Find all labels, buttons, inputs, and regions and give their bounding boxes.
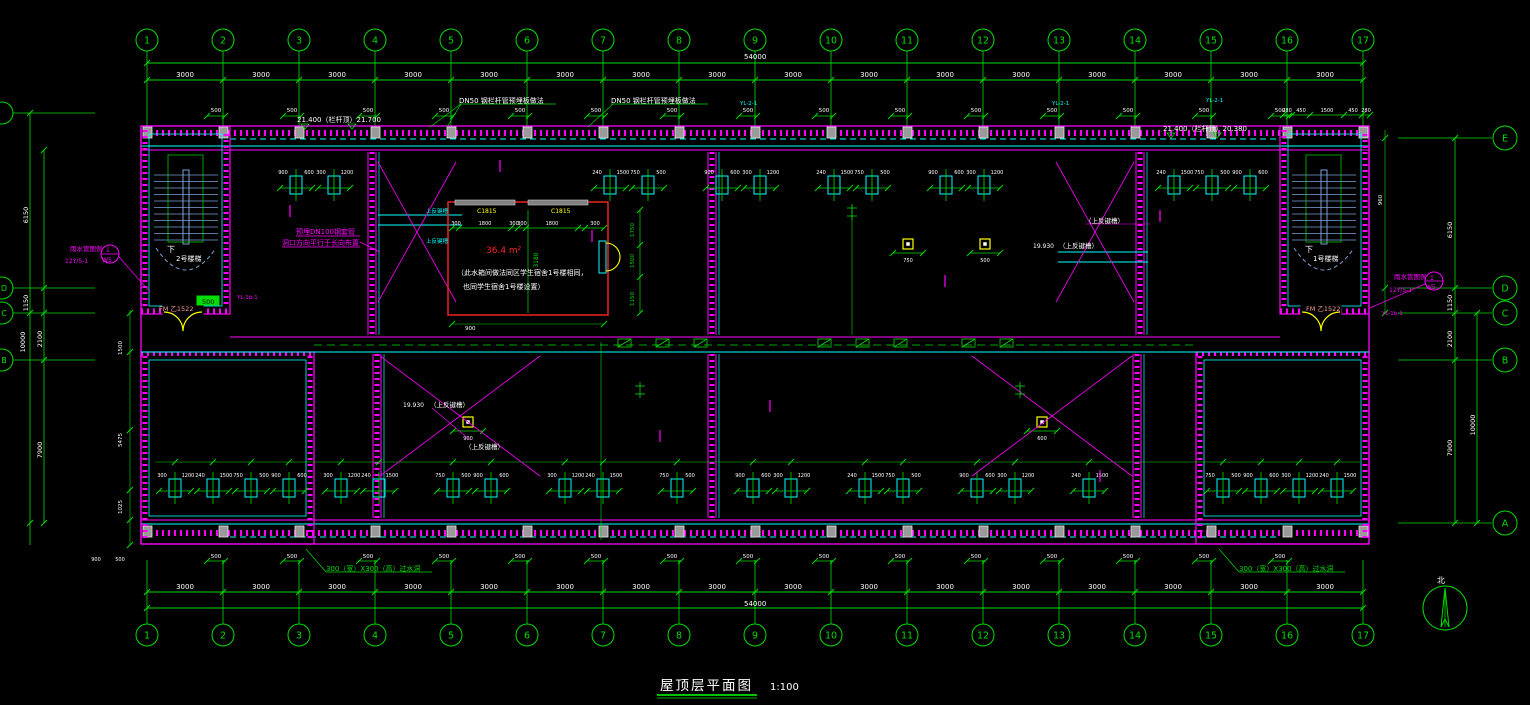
offset-dim: 500 (971, 554, 982, 560)
micro-dim: 600 (954, 170, 964, 176)
downpipe-label-a: YL-2-1 (739, 101, 757, 107)
bay-dim: 3000 (328, 583, 346, 591)
axis-number: 14 (1129, 631, 1141, 642)
offset-dim: 500 (667, 554, 678, 560)
offset-dim: 500 (1123, 108, 1134, 114)
line (818, 339, 831, 347)
micro-dim: 600 (304, 170, 314, 176)
tank-bottom-dim: 900 (465, 326, 476, 332)
offset-dim: 280 (1361, 108, 1371, 114)
left-chain-1150: 1150 (22, 295, 30, 312)
downpipe-label-c: YL-2-1 (1205, 98, 1223, 104)
inner-left-dim-2: 5475 (118, 433, 124, 447)
micro-dim: 500 (911, 473, 921, 479)
downpipe-label-left: YL-1b-1 (236, 295, 258, 301)
offset-dim: 500 (819, 108, 830, 114)
rain-legend-left-2: 12Y/5-1 (65, 258, 88, 265)
bay-dim: 3000 (936, 71, 954, 79)
micro-dim: 750 (233, 473, 243, 479)
micro-dim: 1200 (798, 473, 811, 479)
beam-label-2: 上反键槽 (426, 237, 449, 245)
line (656, 339, 669, 347)
micro-dim: 1200 (341, 170, 354, 176)
offset-dim: 500 (287, 554, 298, 560)
upturn-note-1: （上反键槽） (1085, 216, 1124, 225)
parapet-post (523, 127, 532, 138)
micro-dim: 900 (463, 436, 473, 442)
parapet-post (675, 526, 684, 537)
bay-dim: 3000 (1164, 71, 1182, 79)
stair-tower (1280, 126, 1369, 314)
micro-dim: 1500 (841, 170, 854, 176)
axis-number: 17 (1357, 631, 1369, 642)
grid-letter: C (1, 309, 7, 318)
bay-dim: 3000 (1088, 583, 1106, 591)
parapet-post (1359, 127, 1368, 138)
line (1219, 549, 1239, 572)
parapet-post (979, 127, 988, 138)
micro-dim: 500 (880, 170, 890, 176)
right-chain-1150: 1150 (1446, 295, 1454, 312)
micro-dim: 900 (91, 557, 101, 563)
north-label: 北 (1437, 576, 1445, 585)
window-label-a: C1815 (477, 208, 497, 215)
rect (149, 134, 222, 306)
inner-left-dim-1: 1500 (118, 341, 124, 355)
railing-note-left: 21.400（栏杆顶）21.700 (297, 115, 381, 124)
bay-dim: 3000 (860, 583, 878, 591)
parapet-post (751, 127, 760, 138)
parapet-post (219, 526, 228, 537)
offset-dim: 500 (515, 554, 526, 560)
axis-number: 8 (676, 36, 682, 47)
micro-dim: 1200 (182, 473, 195, 479)
micro-dim: 900 (1243, 473, 1253, 479)
micro-dim: 1200 (1306, 473, 1319, 479)
micro-dim: 600 (1258, 170, 1268, 176)
micro-dim: 900 (271, 473, 281, 479)
micro-dim: 240 (1156, 170, 1166, 176)
micro-dim: 500 (980, 258, 990, 264)
tank-right-dim-2: 1500 (630, 254, 636, 268)
micro-dim: 1500 (220, 473, 233, 479)
rain-legend-left-c1: 1 (106, 247, 110, 254)
axis-number: 14 (1129, 36, 1141, 47)
rect (907, 243, 910, 246)
rect (984, 243, 987, 246)
micro-dim: 240 (592, 170, 602, 176)
offset-dim: 500 (1199, 108, 1210, 114)
bay-dim: 3000 (176, 583, 194, 591)
axis-number: 6 (524, 36, 530, 47)
offset-dim: 500 (591, 554, 602, 560)
micro-dim: 750 (1194, 170, 1204, 176)
upturn-note-3: （上反键槽） (430, 400, 469, 409)
line (962, 339, 975, 347)
bay-dim: 3000 (1240, 71, 1258, 79)
parapet-post (371, 526, 380, 537)
level-value-1: 19.930 (1033, 243, 1054, 250)
axis-number: 3 (296, 631, 302, 642)
parapet-post (903, 127, 912, 138)
micro-dim: 600 (761, 473, 771, 479)
parapet-post (751, 526, 760, 537)
left-chain-2100: 2100 (36, 331, 44, 348)
bay-dim: 3000 (708, 71, 726, 79)
micro-dim: 300 (323, 473, 333, 479)
micro-dim: 750 (903, 258, 913, 264)
axis-number: 10 (825, 36, 837, 47)
micro-dim: 1500 (1096, 473, 1109, 479)
sleeve-note-line2: 洞口方向平行于长向布置 (282, 238, 359, 247)
micro-dim: 500 (1231, 473, 1241, 479)
bay-dim: 3000 (252, 71, 270, 79)
parapet-post (447, 526, 456, 537)
offset-dim: 500 (1199, 554, 1210, 560)
bay-dim: 3000 (1012, 71, 1030, 79)
offset-dim: 500 (895, 554, 906, 560)
grid-letter: E (1502, 134, 1508, 145)
bay-dim: 3000 (860, 71, 878, 79)
parapet-post (979, 526, 988, 537)
micro-dim: 600 (985, 473, 995, 479)
upturn-note-4: （上反键槽） (465, 442, 504, 451)
axis-number: 4 (372, 36, 378, 47)
axis-number: 17 (1357, 36, 1369, 47)
micro-dim: 1200 (991, 170, 1004, 176)
parapet-post (1131, 526, 1140, 537)
fire-door-label-right: FM 乙1522 (1306, 305, 1340, 313)
offset-dim: 500 (1047, 108, 1058, 114)
bay-dim: 3000 (784, 583, 802, 591)
fire-door-label-left: FM 乙1522 (159, 305, 193, 313)
tank-note-line2: 也同学生宿舍1号楼设置） (463, 282, 544, 291)
bay-dim: 3000 (328, 71, 346, 79)
micro-dim: 750 (435, 473, 445, 479)
grid-letter: D (1501, 284, 1508, 295)
line (306, 549, 326, 572)
railing-note-right: 21.400（栏杆顶）20.380 (1163, 124, 1247, 133)
axis-number: 1 (144, 36, 150, 47)
cad-drawing-canvas[interactable]: 1122334455667788991010111112121313141415… (0, 0, 1530, 705)
axis-number: 5 (448, 36, 454, 47)
parapet-post (599, 526, 608, 537)
offset-dim: 1500 (1321, 108, 1334, 114)
axis-number: 2 (220, 36, 226, 47)
micro-dim: 500 (115, 557, 125, 563)
offset-dim: 500 (211, 554, 222, 560)
stair-tower (141, 126, 230, 314)
axis-number: 12 (977, 36, 989, 47)
waterhole-note-left: 300（宽）X300（高）过水洞 (326, 564, 421, 573)
micro-dim: 500 (461, 473, 471, 479)
rain-legend-right-c1: 1 (1430, 275, 1434, 282)
offset-dim: 500 (1123, 554, 1134, 560)
axis-number: 16 (1281, 36, 1293, 47)
wing (1196, 352, 1369, 544)
micro-dim: 900 (735, 473, 745, 479)
bay-dim: 3000 (1164, 583, 1182, 591)
bay-dim: 3000 (708, 583, 726, 591)
axis-number: 10 (825, 631, 837, 642)
grid-letter: C (1502, 309, 1509, 320)
axis-number: 6 (524, 631, 530, 642)
dn50-note-b: DN50 钢栏杆管预埋板做法 (611, 96, 696, 105)
tank-window (528, 200, 588, 205)
bay-dim: 3000 (936, 583, 954, 591)
bay-dim: 3000 (1316, 583, 1334, 591)
axis-number: 13 (1053, 36, 1065, 47)
tank-window (455, 200, 515, 205)
micro-dim: 300 (773, 473, 783, 479)
box-500-label: 500 (202, 298, 214, 306)
micro-dim: 1500 (872, 473, 885, 479)
micro-dim: 600 (1037, 436, 1047, 442)
axis-number: 8 (676, 631, 682, 642)
micro-dim: 900 (959, 473, 969, 479)
micro-dim: 300 (997, 473, 1007, 479)
offset-dim: 500 (667, 108, 678, 114)
micro-dim: 900 (1232, 170, 1242, 176)
static-annotations: 21.400（栏杆顶）21.700 21.400（栏杆顶）20.380 DN50… (19, 53, 1477, 694)
micro-dim: 750 (1205, 473, 1215, 479)
grid-letter: B (1, 356, 7, 365)
offset-dim: 500 (895, 108, 906, 114)
micro-dim: 600 (499, 473, 509, 479)
parapet-post (1055, 127, 1064, 138)
micro-dim: 500 (1220, 170, 1230, 176)
offset-dim: 500 (363, 554, 374, 560)
rain-legend-right-2: 12Y/5-1 (1389, 287, 1412, 294)
bay-dim: 3000 (784, 71, 802, 79)
stair-rail (1306, 155, 1341, 242)
micro-dim: 600 (730, 170, 740, 176)
bay-dim: 3000 (556, 583, 574, 591)
micro-dim: 1200 (348, 473, 361, 479)
parapet-post (903, 526, 912, 537)
micro-dim: 750 (854, 170, 864, 176)
right-chain-7900: 7900 (1446, 440, 1454, 457)
axis-number: 15 (1205, 36, 1217, 47)
line (694, 339, 707, 347)
line (894, 339, 907, 347)
offset-dim: 500 (819, 554, 830, 560)
micro-dim: 900 (928, 170, 938, 176)
grid-letter: D (1, 284, 7, 293)
micro-dim: 600 (1269, 473, 1279, 479)
right-chain-outer: 10000 (1469, 415, 1477, 436)
axis-number: 2 (220, 631, 226, 642)
micro-dim: 240 (847, 473, 857, 479)
generated-drawing: 1122334455667788991010111112121313141415… (0, 29, 1517, 698)
rain-legend-right-c2: W5 (1426, 284, 1436, 291)
beam-label-1: 上反键槽 (426, 207, 449, 215)
micro-dim: 1800 (479, 221, 492, 227)
micro-dim: 500 (656, 170, 666, 176)
offset-dim: 500 (515, 108, 526, 114)
drawing-scale: 1:100 (770, 682, 799, 693)
grid-letter: B (1502, 356, 1509, 367)
micro-dim: 300 (742, 170, 752, 176)
axis-number: 7 (600, 631, 606, 642)
left-chain-outer: 10000 (19, 332, 27, 353)
line (856, 339, 869, 347)
offset-dim: 500 (743, 554, 754, 560)
tank-area-label: 36.4 m² (486, 246, 522, 256)
offset-dim: 500 (1275, 554, 1286, 560)
micro-dim: 750 (885, 473, 895, 479)
bay-dim: 3000 (632, 583, 650, 591)
total-dim-top: 54000 (744, 53, 766, 61)
parapet-post (295, 127, 304, 138)
micro-dim: 1200 (1022, 473, 1035, 479)
axis-number: 15 (1205, 631, 1217, 642)
axis-number: 11 (901, 631, 913, 642)
rain-legend-left-c2: W5 (102, 257, 112, 264)
stair-right-down-label: 下 (1305, 245, 1313, 254)
micro-dim: 500 (259, 473, 269, 479)
offset-dim: 500 (591, 108, 602, 114)
offset-dim: 280 (1282, 108, 1292, 114)
downpipe-label-right: YL-1b-1 (1381, 311, 1403, 317)
tank-right-dim-1: 1750 (630, 223, 636, 237)
tank-note-line1: （此水箱间做法同区学生宿舍1号楼相同， (457, 268, 587, 277)
upturn-note-2: （上反键槽） (1059, 241, 1098, 250)
grid-letter: A (1502, 519, 1509, 530)
micro-dim: 500 (685, 473, 695, 479)
micro-dim: 1500 (386, 473, 399, 479)
micro-dim: 300 (547, 473, 557, 479)
rect (1288, 134, 1361, 306)
micro-dim: 1500 (610, 473, 623, 479)
bay-dim: 3000 (1316, 71, 1334, 79)
micro-dim: 240 (195, 473, 205, 479)
tank-door-frame (599, 241, 606, 273)
micro-dim: 240 (1071, 473, 1081, 479)
line (618, 339, 631, 347)
offset-dim: 500 (363, 108, 374, 114)
offset-dim: 500 (743, 108, 754, 114)
right-chain-6150: 6150 (1446, 222, 1454, 239)
parapet-post (371, 127, 380, 138)
micro-dim: 1500 (1344, 473, 1357, 479)
micro-dim: 750 (659, 473, 669, 479)
stair-width-dim: 960 (1378, 194, 1384, 205)
parapet-post (447, 127, 456, 138)
micro-dim: 600 (297, 473, 307, 479)
parapet-post (599, 127, 608, 138)
micro-dim: 1500 (617, 170, 630, 176)
micro-dim: 300 (316, 170, 326, 176)
offset-dim: 500 (211, 108, 222, 114)
right-chain-2100: 2100 (1446, 331, 1454, 348)
bay-dim: 3000 (404, 71, 422, 79)
axis-number: 1 (144, 631, 150, 642)
parapet-post (827, 127, 836, 138)
micro-dim: 300 (157, 473, 167, 479)
axis-number: 13 (1053, 631, 1065, 642)
offset-dim: 500 (439, 108, 450, 114)
axis-number: 7 (600, 36, 606, 47)
axis-number: 16 (1281, 631, 1293, 642)
micro-dim: 300 (590, 221, 600, 227)
bay-dim: 3000 (1088, 71, 1106, 79)
stair-right-name: 1号楼梯 (1313, 254, 1338, 263)
micro-dim: 300 (1281, 473, 1291, 479)
parapet-post (827, 526, 836, 537)
parapet-post (1207, 526, 1216, 537)
wing (141, 352, 314, 544)
micro-dim: 1500 (1181, 170, 1194, 176)
rain-legend-right-1: 雨水管图例 (1394, 272, 1427, 281)
micro-dim: 1200 (767, 170, 780, 176)
bay-dim: 3000 (252, 583, 270, 591)
bay-dim: 3000 (176, 71, 194, 79)
sleeve-note-line1: 预埋DN100钢套管 (296, 227, 355, 236)
bay-dim: 3000 (632, 71, 650, 79)
bay-dim: 3000 (556, 71, 574, 79)
total-dim-bottom: 54000 (744, 600, 766, 608)
dn50-note-a: DN50 钢栏杆管预埋板做法 (459, 96, 544, 105)
tank-height-dim: 3180 (533, 252, 540, 267)
micro-dim: 300 (966, 170, 976, 176)
micro-dim: 240 (1319, 473, 1329, 479)
stair-left-down-label: 下 (167, 245, 175, 254)
bay-dim: 3000 (480, 583, 498, 591)
micro-dim: 900 (473, 473, 483, 479)
left-chain-7900: 7900 (36, 442, 44, 459)
rect (1204, 360, 1361, 516)
rain-legend-left-1: 雨水管图例 (70, 244, 103, 253)
micro-dim: 1200 (572, 473, 585, 479)
axis-number: 11 (901, 36, 913, 47)
left-chain-6150: 6150 (22, 207, 30, 224)
parapet-post (1131, 127, 1140, 138)
micro-dim: 300 (451, 221, 461, 227)
offset-dim: 500 (1047, 554, 1058, 560)
micro-dim: 900 (704, 170, 714, 176)
micro-dim: 300 (517, 221, 527, 227)
micro-dim: 750 (630, 170, 640, 176)
grid-letter-bubble (0, 102, 13, 124)
tank-right-dim-3: 1150 (630, 292, 636, 306)
axis-number: 4 (372, 631, 378, 642)
stair-rail (168, 155, 203, 242)
axis-number: 5 (448, 631, 454, 642)
window-label-b: C1815 (551, 208, 571, 215)
level-value-2: 19.930 (403, 402, 424, 409)
axis-number: 3 (296, 36, 302, 47)
parapet-post (219, 127, 228, 138)
micro-dim: 1800 (546, 221, 559, 227)
parapet-post (1055, 526, 1064, 537)
downpipe-label-b: YL-2-1 (1051, 101, 1069, 107)
micro-dim: 240 (585, 473, 595, 479)
micro-dim: 900 (278, 170, 288, 176)
inner-left-dim-3: 1025 (118, 500, 124, 514)
stair-left-name: 2号楼梯 (176, 254, 201, 263)
parapet-post (295, 526, 304, 537)
bay-dim: 3000 (1012, 583, 1030, 591)
bay-dim: 3000 (480, 71, 498, 79)
micro-dim: 240 (361, 473, 371, 479)
parapet-post (523, 526, 532, 537)
waterhole-note-right: 300（宽）X300（高）过水洞 (1239, 564, 1334, 573)
offset-dim: 500 (971, 108, 982, 114)
bay-dim: 3000 (404, 583, 422, 591)
offset-dim: 450 (1296, 108, 1306, 114)
line (1000, 339, 1013, 347)
